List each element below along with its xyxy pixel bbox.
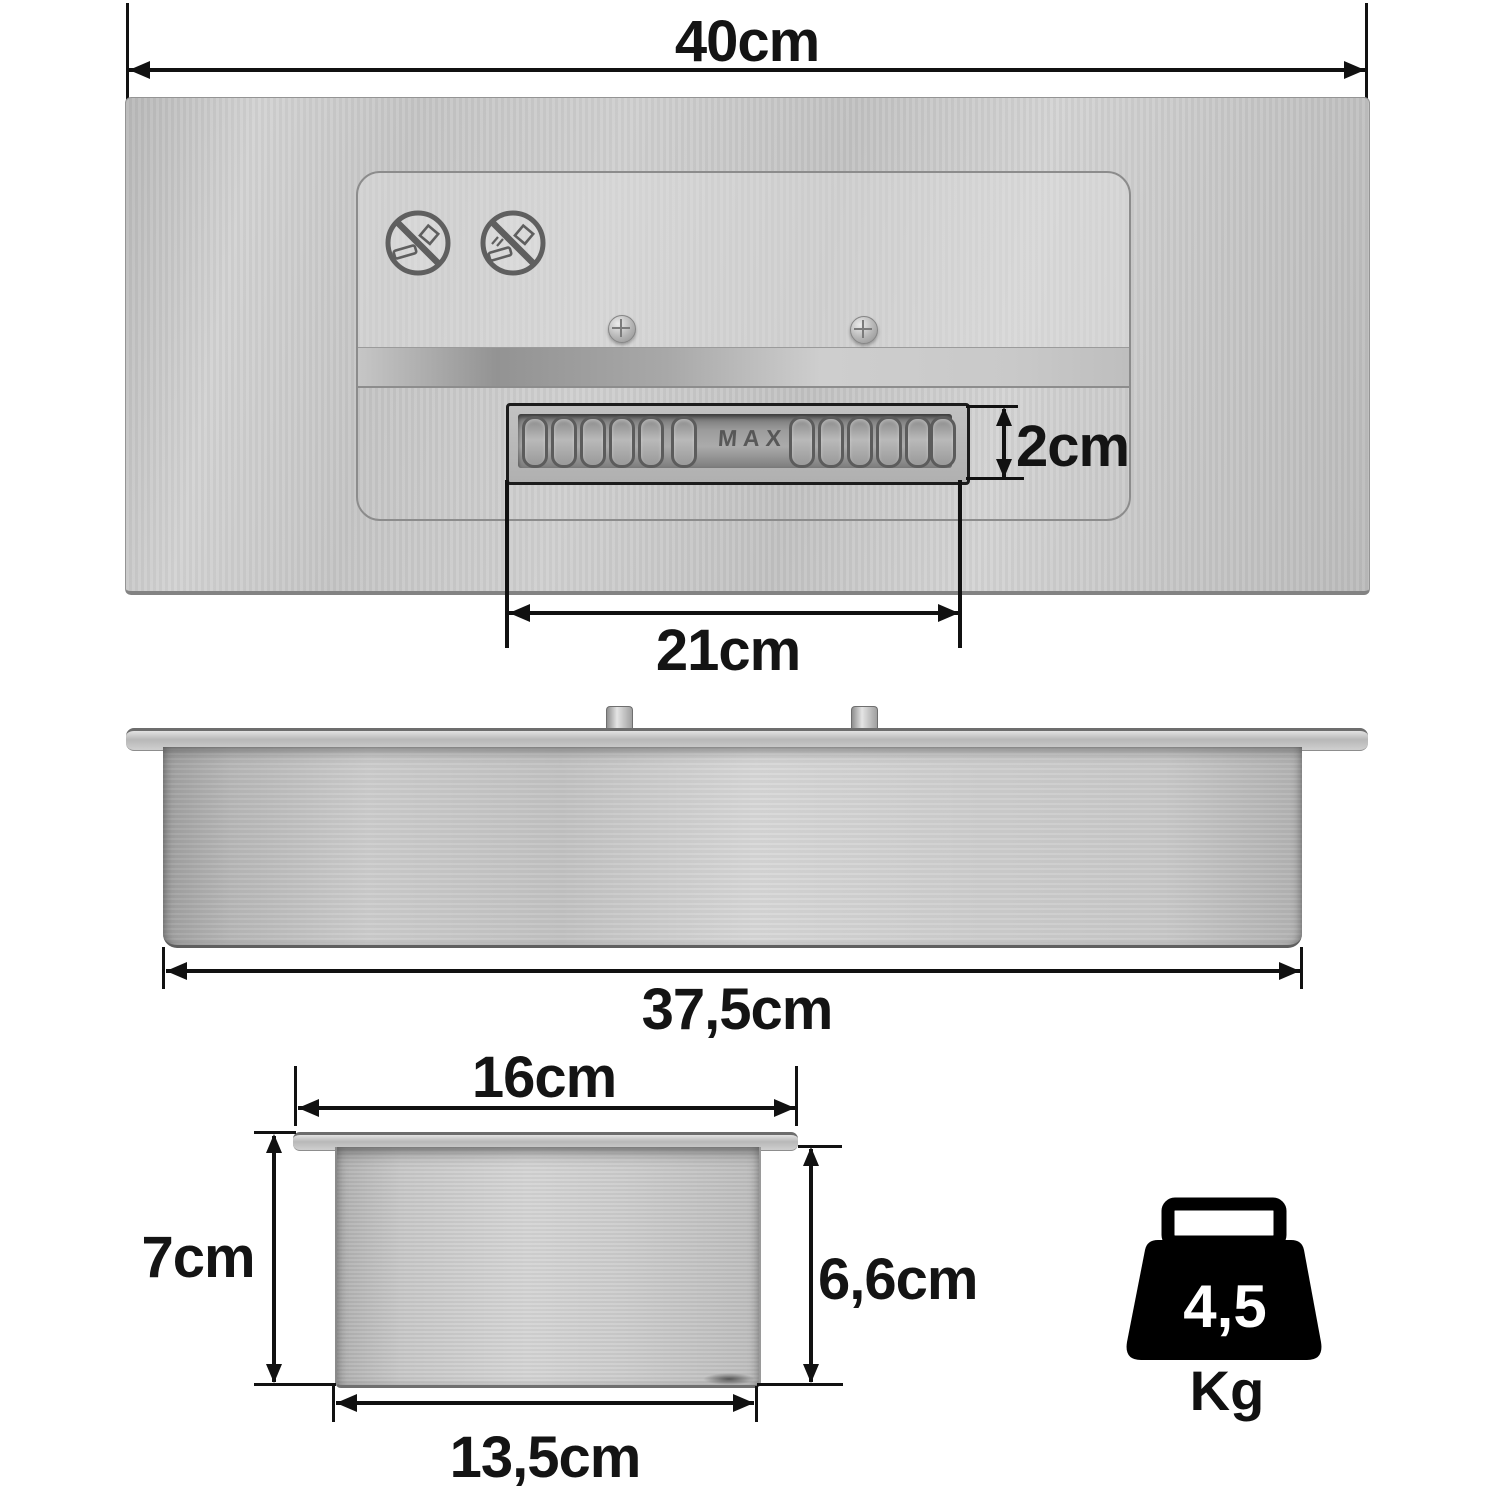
max-fill-marking: MAX — [717, 425, 799, 452]
weld-smudge — [703, 1373, 755, 1385]
dim-label-slot-height: 2cm — [1016, 413, 1129, 480]
dim-21cm-extension-left — [505, 480, 509, 648]
dim-21cm-arrow-line — [509, 611, 959, 615]
slot-vent-hole — [580, 416, 606, 468]
product-dimension-diagram: 40cm — [0, 0, 1500, 1500]
dim-135-extension-left — [332, 1386, 335, 1422]
dim-135-extension-right — [755, 1386, 758, 1422]
dim-66-arrowhead-down-icon — [803, 1364, 819, 1383]
slot-vent-hole — [818, 416, 844, 468]
burner-slot-channel: MAX — [518, 414, 952, 468]
dim-16cm-arrow-line — [298, 1106, 795, 1110]
dim-7cm-arrowhead-down-icon — [266, 1364, 282, 1383]
lid-recess: MAX — [356, 171, 1131, 521]
dim-37cm-extension-right — [1300, 947, 1303, 989]
dim-label-end-body-height: 6,6cm — [818, 1246, 977, 1313]
dim-label-end-body-width: 13,5cm — [450, 1424, 641, 1491]
dim-135-arrow-line — [336, 1401, 754, 1405]
dim-135-arrowhead-right-icon — [733, 1394, 754, 1412]
dim-66-arrow-line — [809, 1149, 813, 1382]
dim-7cm-arrow-line — [272, 1136, 276, 1382]
dim-21cm-extension-right — [958, 480, 962, 648]
slot-vent-hole — [847, 416, 873, 468]
weight-value: 4,5 — [1183, 1273, 1266, 1340]
dim-66-tick-bottom — [757, 1383, 843, 1386]
no-smoking-icon — [382, 207, 454, 279]
lid-pin-icon — [606, 706, 633, 730]
slot-vent-hole — [522, 416, 548, 468]
end-view-body — [335, 1147, 761, 1388]
dim-label-top-width: 40cm — [675, 8, 819, 75]
slot-vent-hole — [609, 416, 635, 468]
weight-unit: Kg — [1190, 1358, 1265, 1423]
dim-37cm-arrowhead-left-icon — [166, 962, 187, 980]
dim-label-slot-length: 21cm — [656, 617, 800, 684]
dim-2cm-arrowhead-up-icon — [996, 407, 1012, 426]
slot-vent-hole — [905, 416, 931, 468]
dim-16cm-arrowhead-left-icon — [298, 1099, 319, 1117]
dim-135-arrowhead-left-icon — [336, 1394, 357, 1412]
dim-7cm-tick-bottom — [254, 1383, 336, 1386]
dim-37cm-arrow-line — [166, 969, 1300, 973]
burner-slot-frame: MAX — [506, 403, 970, 485]
slot-vent-hole — [638, 416, 664, 468]
no-open-flame-icon — [477, 207, 549, 279]
dim-21cm-arrowhead-right-icon — [938, 604, 959, 622]
dim-66-arrowhead-up-icon — [803, 1147, 819, 1166]
slot-vent-hole — [551, 416, 577, 468]
dim-label-side-width: 37,5cm — [642, 976, 833, 1043]
dim-16cm-extension-right — [795, 1066, 798, 1126]
dim-21cm-arrowhead-left-icon — [509, 604, 530, 622]
dim-7cm-arrowhead-up-icon — [266, 1134, 282, 1153]
dim-37cm-extension-left — [162, 947, 165, 989]
dim-37cm-arrowhead-right-icon — [1279, 962, 1300, 980]
dim-16cm-extension-left — [294, 1066, 297, 1126]
dim-40cm-arrowhead-left-icon — [129, 61, 150, 79]
dim-2cm-arrowhead-down-icon — [996, 459, 1012, 478]
lid-surface — [358, 173, 1129, 347]
side-view-body — [163, 747, 1302, 948]
lid-hinge-band — [358, 347, 1129, 388]
burner-top-panel: MAX — [125, 97, 1370, 595]
weight-icon: 4,5 — [1118, 1192, 1330, 1364]
slot-vent-hole — [930, 416, 956, 468]
dim-label-end-total-height: 7cm — [140, 1224, 256, 1291]
phillips-screw-icon — [608, 315, 636, 343]
slot-vent-hole — [876, 416, 902, 468]
dim-label-end-flange-width: 16cm — [472, 1044, 616, 1111]
phillips-screw-icon — [850, 316, 878, 344]
lid-pin-icon — [851, 706, 878, 730]
dim-16cm-arrowhead-right-icon — [774, 1099, 795, 1117]
slot-vent-hole — [671, 416, 697, 468]
dim-40cm-arrowhead-right-icon — [1344, 61, 1365, 79]
